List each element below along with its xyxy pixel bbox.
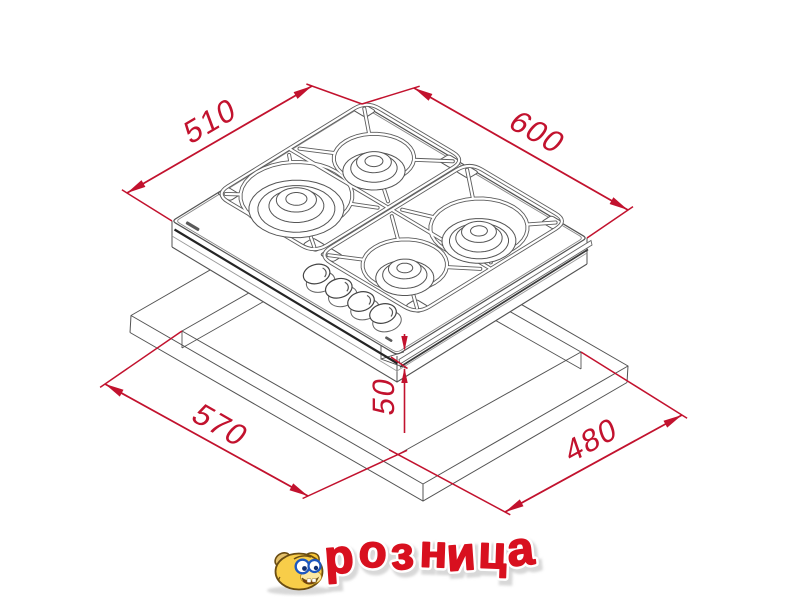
svg-text:о: о xyxy=(357,524,388,577)
svg-text:з: з xyxy=(389,526,415,579)
svg-text:р: р xyxy=(322,530,355,585)
svg-text:ц: ц xyxy=(478,526,508,579)
svg-text:50: 50 xyxy=(366,374,401,418)
svg-text:и: и xyxy=(445,526,478,581)
